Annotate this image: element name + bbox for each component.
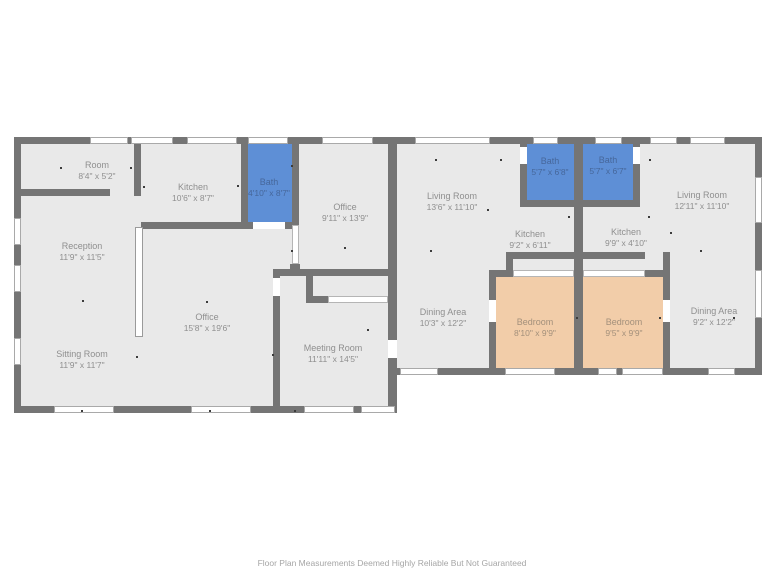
- window: [131, 137, 173, 144]
- room-dimensions: 11'9" x 11'5": [59, 252, 104, 263]
- pocket-door: [135, 227, 143, 337]
- wall: [388, 368, 762, 375]
- room-label-dining-area: Dining Area9'2" x 12'2": [691, 306, 738, 328]
- window: [14, 218, 21, 245]
- window: [595, 137, 622, 144]
- door-opening: [583, 270, 645, 277]
- room-label-meeting-room: Meeting Room11'11" x 14'5": [304, 343, 363, 365]
- marker-dot: [237, 185, 239, 187]
- floor-plan: Room8'4" x 5'2"Kitchen10'6" x 8'7"Bath4'…: [0, 0, 784, 588]
- room-dimensions: 8'10" x 9'9": [514, 328, 556, 339]
- door-opening: [520, 147, 527, 164]
- room-label-bedroom: Bedroom9'5" x 9'9": [605, 317, 642, 339]
- room-dimensions: 4'10" x 8'7": [248, 188, 290, 199]
- wall: [306, 276, 313, 297]
- marker-dot: [700, 250, 702, 252]
- window: [248, 137, 288, 144]
- wall: [292, 137, 299, 225]
- room-name: Bedroom: [514, 317, 556, 328]
- wall: [574, 137, 583, 368]
- wall: [577, 200, 640, 207]
- wall: [755, 137, 762, 375]
- marker-dot: [659, 317, 661, 319]
- marker-dot: [291, 165, 293, 167]
- room-label-sitting-room: Sitting Room11'9" x 11'7": [56, 349, 108, 371]
- marker-dot: [206, 301, 208, 303]
- door-opening: [633, 147, 640, 164]
- marker-dot: [670, 232, 672, 234]
- room-name: Bedroom: [605, 317, 642, 328]
- window: [533, 137, 558, 144]
- window: [14, 338, 21, 365]
- wall: [273, 269, 397, 276]
- marker-dot: [430, 250, 432, 252]
- window: [755, 177, 762, 223]
- wall: [306, 296, 328, 303]
- room-name: Bath: [531, 156, 568, 167]
- marker-dot: [272, 354, 274, 356]
- room-name: Dining Area: [691, 306, 738, 317]
- marker-dot: [500, 159, 502, 161]
- room-dimensions: 11'11" x 14'5": [304, 354, 363, 365]
- room-dimensions: 9'2" x 6'11": [509, 240, 550, 251]
- wall: [645, 270, 670, 277]
- window: [54, 406, 114, 413]
- room-label-kitchen: Kitchen9'2" x 6'11": [509, 229, 550, 251]
- room-name: Meeting Room: [304, 343, 363, 354]
- wall: [134, 137, 141, 196]
- room-label-reception: Reception11'9" x 11'5": [59, 241, 104, 263]
- door-opening: [273, 278, 280, 296]
- room-name: Room: [78, 160, 115, 171]
- door-opening: [253, 222, 285, 229]
- window: [622, 368, 663, 375]
- room-dimensions: 10'3" x 12'2": [420, 318, 467, 329]
- room-label-bath: Bath5'7" x 6'8": [531, 156, 568, 178]
- wall: [583, 252, 645, 259]
- disclaimer-text: Floor Plan Measurements Deemed Highly Re…: [0, 558, 784, 568]
- window: [187, 137, 237, 144]
- marker-dot: [576, 317, 578, 319]
- marker-dot: [487, 209, 489, 211]
- window: [598, 368, 617, 375]
- marker-dot: [294, 410, 296, 412]
- room-name: Kitchen: [605, 227, 647, 238]
- room-dimensions: 9'9" x 4'10": [605, 238, 647, 249]
- wall: [520, 200, 581, 207]
- room-dimensions: 10'6" x 8'7": [172, 193, 214, 204]
- room-name: Kitchen: [509, 229, 550, 240]
- door-opening: [489, 300, 496, 322]
- room-label-dining-area: Dining Area10'3" x 12'2": [420, 307, 467, 329]
- window: [400, 368, 438, 375]
- room-label-bath: Bath4'10" x 8'7": [248, 177, 290, 199]
- room-dimensions: 9'2" x 12'2": [691, 317, 738, 328]
- room-label-room: Room8'4" x 5'2": [78, 160, 115, 182]
- room-label-office: Office15'8" x 19'6": [184, 312, 231, 334]
- window: [361, 406, 395, 413]
- room-name: Kitchen: [172, 182, 214, 193]
- wall: [14, 189, 110, 196]
- room-label-living-room: Living Room13'6" x 11'10": [427, 191, 478, 213]
- room-label-bath: Bath5'7" x 6'7": [589, 155, 626, 177]
- window: [708, 368, 735, 375]
- marker-dot: [82, 300, 84, 302]
- marker-dot: [291, 250, 293, 252]
- room-label-office: Office9'11" x 13'9": [322, 202, 368, 224]
- room-dimensions: 12'11" x 11'10": [675, 201, 730, 212]
- window: [191, 406, 251, 413]
- room-dimensions: 9'11" x 13'9": [322, 213, 368, 224]
- marker-dot: [81, 410, 83, 412]
- marker-dot: [209, 410, 211, 412]
- marker-dot: [367, 329, 369, 331]
- door-opening: [663, 300, 670, 322]
- room-name: Reception: [59, 241, 104, 252]
- wall: [273, 276, 280, 413]
- window: [415, 137, 490, 144]
- wall: [506, 252, 574, 259]
- room-name: Living Room: [675, 190, 730, 201]
- door-opening: [292, 225, 299, 264]
- marker-dot: [143, 186, 145, 188]
- room-dimensions: 13'6" x 11'10": [427, 202, 478, 213]
- room-label-kitchen: Kitchen9'9" x 4'10": [605, 227, 647, 249]
- door-opening: [513, 270, 574, 277]
- marker-dot: [344, 247, 346, 249]
- marker-dot: [136, 356, 138, 358]
- room-name: Office: [322, 202, 368, 213]
- room-dimensions: 15'8" x 19'6": [184, 323, 231, 334]
- room-name: Bath: [248, 177, 290, 188]
- window: [650, 137, 677, 144]
- marker-dot: [649, 159, 651, 161]
- room-dimensions: 9'5" x 9'9": [605, 328, 642, 339]
- window: [304, 406, 354, 413]
- window: [90, 137, 128, 144]
- marker-dot: [60, 167, 62, 169]
- room-name: Bath: [589, 155, 626, 166]
- room-dimensions: 8'4" x 5'2": [78, 171, 115, 182]
- room-name: Sitting Room: [56, 349, 108, 360]
- marker-dot: [435, 159, 437, 161]
- window: [505, 368, 555, 375]
- room-label-bedroom: Bedroom8'10" x 9'9": [514, 317, 556, 339]
- room-label-living-room: Living Room12'11" x 11'10": [675, 190, 730, 212]
- room-name: Dining Area: [420, 307, 467, 318]
- marker-dot: [648, 216, 650, 218]
- window: [690, 137, 725, 144]
- room-name: Office: [184, 312, 231, 323]
- room-label-kitchen: Kitchen10'6" x 8'7": [172, 182, 214, 204]
- window: [14, 265, 21, 292]
- window: [322, 137, 373, 144]
- room-dimensions: 5'7" x 6'7": [589, 166, 626, 177]
- room-name: Living Room: [427, 191, 478, 202]
- room-dimensions: 11'9" x 11'7": [56, 360, 108, 371]
- door-opening: [388, 340, 397, 358]
- window: [755, 270, 762, 318]
- marker-dot: [130, 167, 132, 169]
- room-dimensions: 5'7" x 6'8": [531, 167, 568, 178]
- wall: [241, 137, 248, 229]
- door-opening: [328, 296, 388, 303]
- marker-dot: [568, 216, 570, 218]
